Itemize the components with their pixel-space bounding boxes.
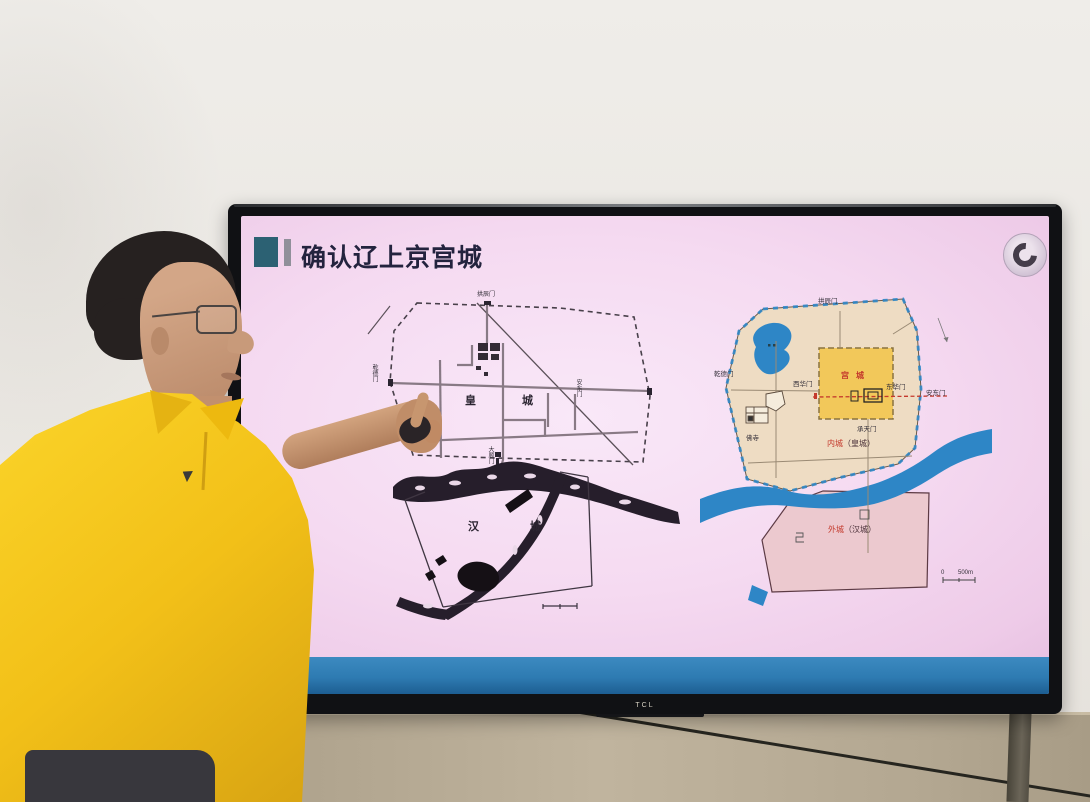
right-map-north-gate-label: 拱辰门 [818,299,838,306]
right-map-east-gate-label: 安东门 [926,391,946,398]
right-map-scale-bar [943,577,975,583]
right-site-map [700,285,992,615]
stream-arrow [938,318,949,342]
river-band [393,462,680,524]
outer-city-text: 外城 [828,525,844,534]
street-grid [391,305,649,470]
building-ruins [425,489,533,592]
river-branch [748,585,768,606]
right-map-palace-west-gate-label: 西华门 [793,382,813,389]
tv-bezel-glint [234,204,1056,207]
institute-seal-logo [1003,233,1047,277]
title-accent-bar [284,239,291,266]
left-map-south-gate-label: 大顺门 [487,446,493,464]
river-sw-band [396,597,450,620]
palace-city-area [819,348,893,419]
ancient-diagonal-road [477,303,633,465]
inner-city-paren-text: （皇城） [843,439,875,448]
left-map-imperial-city-label: 皇城 [465,396,579,407]
slide-footer-band [241,657,1049,694]
left-map-han-city-label: 汉城 [468,522,592,533]
right-map-outer-city-label: 外城（汉城） [828,526,876,534]
left-map-scale-bar [543,603,577,609]
right-map-palace-east-gate-label: 东华门 [886,385,906,392]
axis-red-tick [814,393,817,399]
tv-frame: TCL 确认辽上京宫城 [228,204,1062,714]
slide-title: 确认辽上京宫城 [301,238,483,274]
right-map-west-gate-label: 乾德门 [714,372,734,379]
scale-zero-label: 0 [941,570,944,576]
nw-road [368,306,390,334]
tv-brand-logo: TCL [635,702,654,709]
tv-screen: 确认辽上京宫城 [241,216,1049,694]
tv-leg [1006,712,1031,802]
left-map-west-gate-label: 乾德门 [371,364,377,382]
outer-city-paren-text: （汉城） [844,525,876,534]
seal-c-glyph [1008,238,1042,272]
imperial-city-wall [390,303,650,462]
right-map-palace-south-gate-label: 承天门 [857,427,877,434]
right-map-temple-label: 佛寺 [746,436,759,443]
right-map-inner-city-label: 内城（皇城） [827,440,875,448]
photo-scene: TCL 确认辽上京宫城 [0,0,1090,802]
table-surface [0,712,1090,802]
left-map-north-gate-label: 拱辰门 [477,292,495,298]
scale-500m-label: 500m [958,570,973,576]
right-map-palace-city-label: 宫城 [841,372,871,380]
title-accent-square [254,237,278,267]
palace-ruins-hatch [476,343,500,376]
left-site-map [355,288,685,628]
inner-city-text: 内城 [827,439,843,448]
